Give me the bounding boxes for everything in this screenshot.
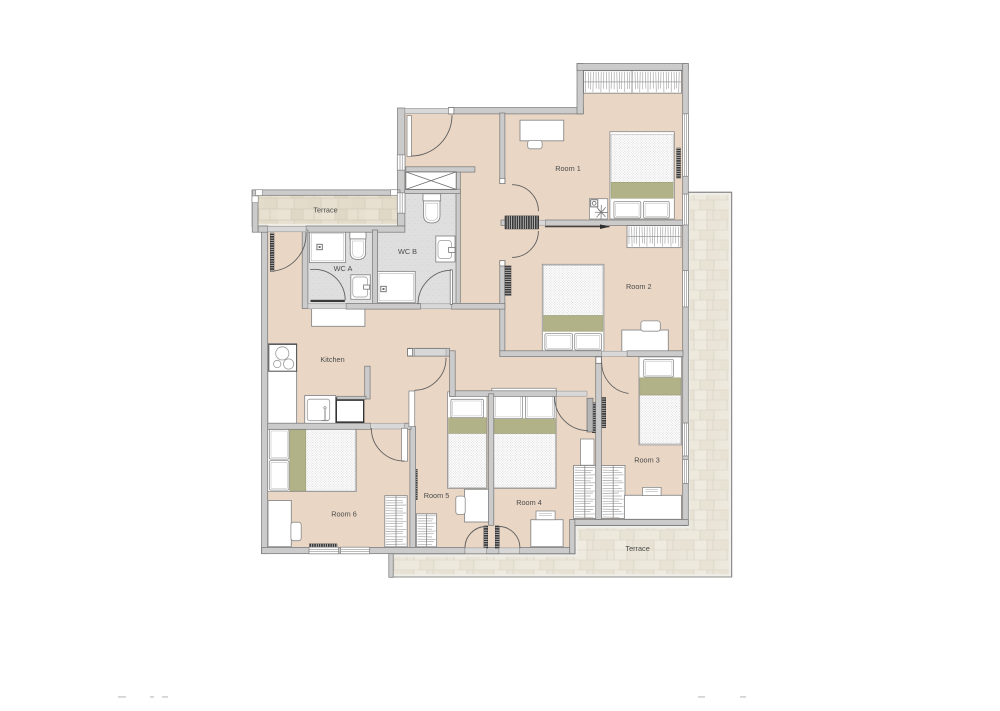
svg-text:Room 3: Room 3 xyxy=(634,455,660,464)
svg-text:Room 4: Room 4 xyxy=(516,498,542,507)
svg-text:Room 5: Room 5 xyxy=(424,491,450,500)
svg-text:WC A: WC A xyxy=(334,264,353,273)
svg-text:Room 2: Room 2 xyxy=(626,282,652,291)
svg-text:WC B: WC B xyxy=(398,247,417,256)
svg-text:Terrace: Terrace xyxy=(625,544,649,553)
svg-text:Room 6: Room 6 xyxy=(331,510,357,519)
svg-text:Kitchen: Kitchen xyxy=(320,355,344,364)
svg-text:Terrace: Terrace xyxy=(313,205,337,214)
svg-text:Room 1: Room 1 xyxy=(555,164,581,173)
